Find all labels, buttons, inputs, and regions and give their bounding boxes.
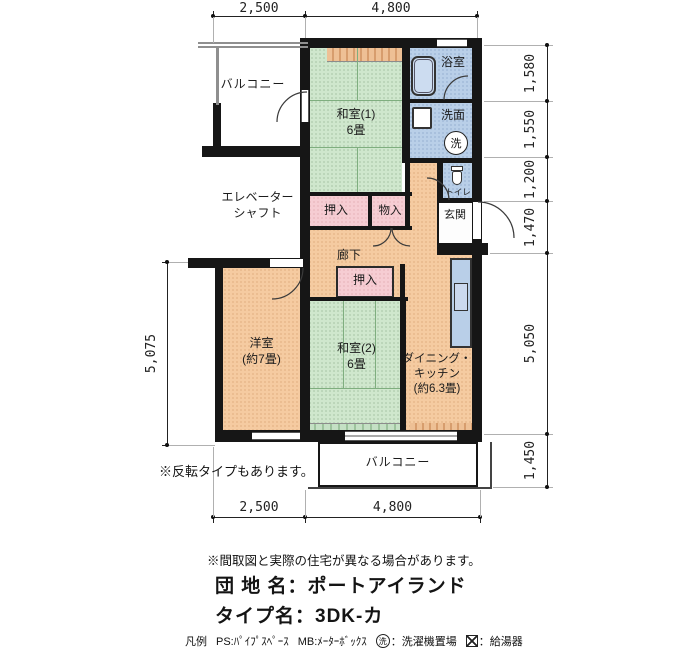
western-bottom-window [252,432,300,440]
dim-right-1550: 1,550 [516,101,546,157]
entrance-door-arc [478,202,514,238]
dim-extension [493,487,553,488]
elevator-shaft-label: エレベーター シャフト [205,190,310,221]
dim-extension [477,17,478,38]
storage-label: 物入 [370,204,410,219]
dim-extension [169,445,215,446]
legend-mb: MB:ﾒｰﾀｰﾎﾞｯｸｽ [298,633,367,649]
water-heater-icon [466,635,478,647]
wall-corridor-dk-stub [400,264,405,297]
legend-ps: PS:ﾊﾟｲﾌﾟｽﾍﾟｰｽ [216,633,289,649]
main-bottom-window [345,431,457,441]
washroom-sink-icon [412,107,432,129]
legend-heater: ：給湯器 [466,633,523,649]
legend-heater-text: ：給湯器 [479,633,523,649]
wall-column-divider [405,163,410,230]
laundry-circle-icon: 洗 [376,634,390,648]
wall-toilet-bottom [437,198,472,203]
dim-bottom-left: 2,500 [213,500,305,515]
western-door-opening [270,259,303,267]
wall-closet-bottom [300,226,412,230]
dim-right-1200: 1,200 [516,157,546,201]
dim-extension [305,17,306,38]
wall-balcony-top-left [213,103,221,148]
closet1-label: 押入 [304,203,368,219]
wall-closet-top [300,192,412,196]
closet2-label: 押入 [336,273,394,289]
balcony-rail [198,42,308,44]
dim-extension [169,262,188,263]
entrance-step [437,243,488,255]
tatami-line [357,147,358,192]
dining-kitchen-label: ダイニング・ キッチン (約6.3畳) [400,352,474,397]
dim-right-1470: 1,470 [516,201,546,253]
bath-window [437,39,467,47]
washroom-label: 洗面 [434,108,472,124]
washitsu2-label: 和室(2) 6畳 [308,341,405,372]
balcony-outline [490,442,492,488]
dim-extension [305,490,306,517]
tatami-line [357,48,358,100]
type-name: タイプ名：3DK-カ [215,601,383,628]
balcony-outline [308,487,492,489]
dim-top-right: 4,800 [305,1,477,16]
dim-right-5050: 5,050 [516,253,546,434]
western-room-label: 洋室 (約7畳) [223,336,300,367]
disclaimer-note: ※間取図と実際の住宅が異なる場合があります。 [207,550,481,569]
legend-laundry-text: ：洗濯機置場 [391,633,457,649]
dim-extension [213,447,214,517]
tatami-line [308,388,405,389]
dim-right-1450: 1,450 [516,434,546,487]
dim-extension [213,17,214,43]
legend-title: 凡例 [185,633,207,649]
wall-western-left [215,268,223,430]
estate-name: 団 地 名：ポートアイランド [215,571,467,598]
washitsu1-shelf-hatch [327,48,402,62]
dim-extension [480,490,481,517]
tatami-line [310,100,402,101]
tatami-line [310,147,402,148]
dim-line-bottom [213,517,480,518]
entrance-door-opening [473,202,481,239]
toilet-label: トイレ [443,187,473,198]
dim-line-left [167,262,168,445]
balcony-rail [198,46,308,48]
washitsu1-label: 和室(1) 6畳 [310,107,402,138]
toilet-bowl-icon [452,171,462,185]
balcony-top-label: バルコニー [202,77,304,93]
dim-left-5075: 5,075 [137,262,167,445]
legend-laundry: 洗 ：洗濯機置場 [376,633,457,649]
entrance-label: 玄関 [438,208,472,222]
dim-line-top [213,16,478,17]
balcony-door-opening [301,90,309,122]
legend-row: 凡例 PS:ﾊﾟｲﾌﾟｽﾍﾟｰｽ MB:ﾒｰﾀｰﾎﾞｯｸｽ 洗 ：洗濯機置場 ：… [185,633,523,649]
dim-line-right [547,45,548,487]
bath-label: 浴室 [436,55,470,71]
laundry-place-symbol: 洗 [444,131,468,155]
room-corridor-upper [408,163,437,200]
dim-right-1580: 1,580 [516,45,546,101]
dim-top-left: 2,500 [213,1,305,16]
dim-bottom-right: 4,800 [305,500,480,515]
hallway-label: 廊下 [328,248,370,264]
mirror-type-note: ※反転タイプもあります。 [159,461,314,480]
balcony-bottom-label: バルコニー [318,455,478,471]
bathtub-inner-line [414,59,433,93]
floorplan-page: 洗 バルコニー 和室(1) 6畳 浴室 洗面 トイレ 玄関 押入 物入 エレベー… [0,0,700,650]
wall-washitsu2-top [308,297,408,301]
wall-bath-washroom [405,99,472,103]
kitchen-sink-icon [454,283,468,311]
